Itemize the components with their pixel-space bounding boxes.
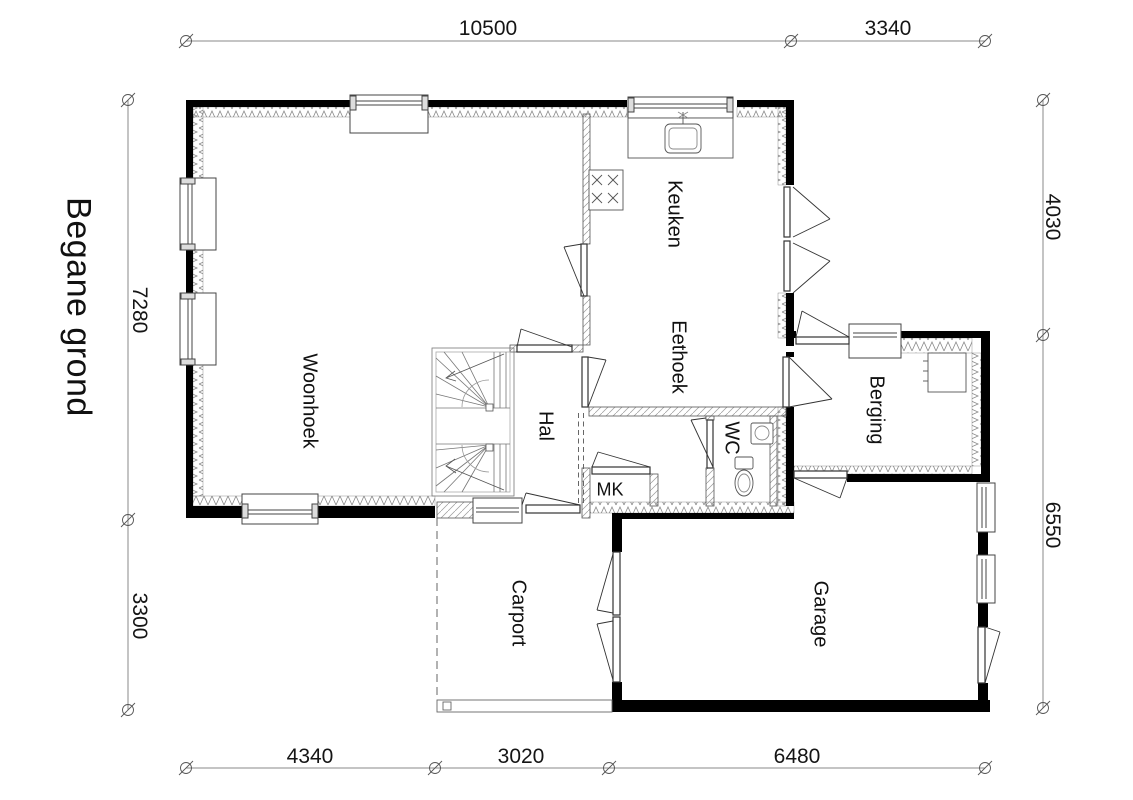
door-hal-eethoek bbox=[582, 357, 606, 407]
window-woonhoek-left-upper bbox=[180, 178, 216, 250]
dim-bottom-6480: 6480 bbox=[774, 745, 821, 769]
door-eethoek-berging bbox=[783, 357, 832, 407]
room-label-hal: Hal bbox=[534, 411, 557, 441]
room-label-berging: Berging bbox=[865, 376, 888, 445]
window-woonhoek-top bbox=[350, 95, 428, 133]
room-label-woonhoek: Woonhoek bbox=[298, 353, 321, 448]
window-garage-right-upper bbox=[977, 483, 995, 532]
door-berging-exterior bbox=[796, 311, 849, 344]
room-label-wc: WC bbox=[720, 421, 743, 454]
window-garage-right-lower bbox=[977, 555, 995, 603]
window-woonhoek-bottom bbox=[242, 494, 318, 524]
dim-left-7280: 7280 bbox=[127, 287, 151, 334]
dim-bottom-4340: 4340 bbox=[287, 745, 334, 769]
room-label-keuken: Keuken bbox=[663, 180, 686, 248]
door-mk bbox=[592, 452, 650, 474]
front-door bbox=[522, 493, 580, 513]
dim-right-4030: 4030 bbox=[1040, 194, 1064, 241]
kitchen-fixtures bbox=[589, 112, 733, 210]
window-berging-top bbox=[849, 324, 901, 358]
wall-insulation-hatch bbox=[193, 107, 972, 513]
door-wc bbox=[691, 418, 713, 468]
page-title: Begane grond bbox=[59, 197, 98, 417]
window-woonhoek-left-lower bbox=[180, 293, 216, 365]
dim-left-3300: 3300 bbox=[127, 593, 151, 640]
dim-bottom-3020: 3020 bbox=[498, 745, 545, 769]
dim-right-6550: 6550 bbox=[1040, 502, 1064, 549]
room-label-garage: Garage bbox=[809, 581, 832, 648]
room-label-mk: MK bbox=[597, 480, 624, 501]
floorplan-drawing bbox=[0, 0, 1133, 800]
carport-kerb bbox=[437, 700, 612, 712]
dim-top-3340: 3340 bbox=[865, 17, 912, 41]
door-keuken-woonhoek bbox=[564, 244, 587, 296]
toilet-symbol bbox=[735, 457, 753, 496]
doors-garage-carport bbox=[597, 552, 620, 682]
berging-cupboard-symbol bbox=[923, 353, 966, 392]
door-berging-garage bbox=[794, 471, 847, 498]
floorplan-page: Begane grond Woonhoek Keuken Eethoek Hal… bbox=[0, 0, 1133, 800]
room-label-eethoek: Eethoek bbox=[667, 320, 690, 393]
window-front-door-sidelight bbox=[473, 498, 522, 523]
door-garage-right bbox=[978, 627, 1000, 683]
room-label-carport: Carport bbox=[507, 580, 530, 647]
dim-top-10500: 10500 bbox=[459, 17, 517, 41]
door-woonhoek-hal bbox=[517, 329, 572, 352]
hand-basin-symbol bbox=[751, 423, 773, 444]
staircase bbox=[432, 348, 514, 496]
french-doors-eethoek bbox=[784, 187, 830, 293]
stove-symbol bbox=[589, 170, 623, 210]
window-keuken-top bbox=[628, 97, 733, 118]
